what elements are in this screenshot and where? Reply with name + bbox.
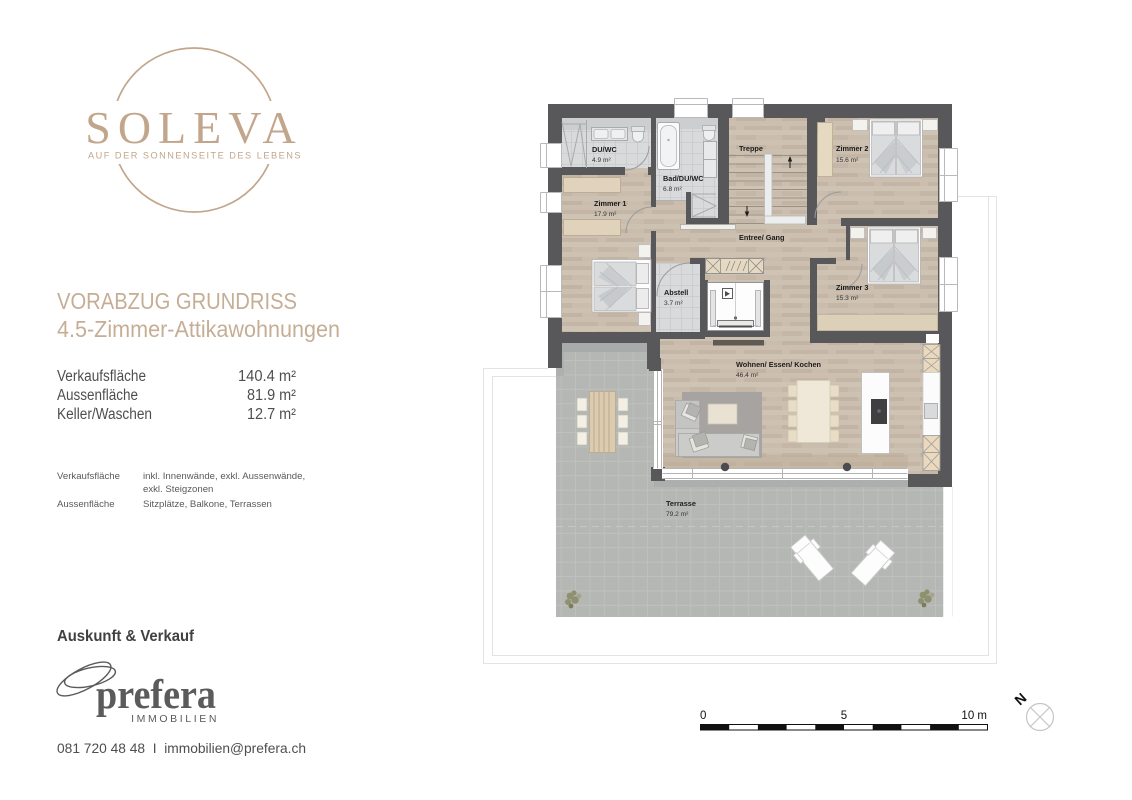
svg-text:15.3 m²: 15.3 m² [836,295,859,302]
svg-text:Zimmer 2: Zimmer 2 [836,144,868,153]
svg-text:prefera: prefera [96,671,216,717]
svg-text:SOLEVA: SOLEVA [85,102,303,153]
svg-text:140.4 m²: 140.4 m² [238,368,296,385]
svg-text:Sitzplätze, Balkone, Terrassen: Sitzplätze, Balkone, Terrassen [143,499,272,510]
svg-text:81.9 m²: 81.9 m² [247,387,296,404]
svg-text:exkl. Steigzonen: exkl. Steigzonen [143,484,213,495]
svg-text:Verkaufsfläche: Verkaufsfläche [57,471,120,482]
svg-text:5: 5 [841,710,847,722]
svg-text:IMMOBILIEN: IMMOBILIEN [131,713,219,725]
svg-text:Treppe: Treppe [739,144,763,153]
svg-text:Zimmer 3: Zimmer 3 [836,283,868,292]
svg-text:12.7 m²: 12.7 m² [247,406,296,423]
svg-text:Verkaufsfläche: Verkaufsfläche [57,368,146,385]
svg-text:AUF DER SONNENSEITE DES LEBENS: AUF DER SONNENSEITE DES LEBENS [88,151,302,161]
svg-text:081 720 48 48 I immobilien@p: 081 720 48 48 I immobilien@prefera.ch [57,741,306,756]
svg-text:Abstell: Abstell [664,288,688,297]
svg-text:6.8 m²: 6.8 m² [663,186,682,193]
svg-text:17.9 m²: 17.9 m² [594,211,617,218]
svg-text:79.2 m²: 79.2 m² [666,511,689,518]
svg-text:0: 0 [700,710,706,722]
svg-text:46.4 m²: 46.4 m² [736,372,759,379]
svg-text:Wohnen/ Essen/ Kochen: Wohnen/ Essen/ Kochen [736,360,821,369]
svg-text:Entree/ Gang: Entree/ Gang [739,233,784,242]
svg-text:3.7 m²: 3.7 m² [664,300,683,307]
svg-text:4.5-Zimmer-Attikawohnungen: 4.5-Zimmer-Attikawohnungen [57,316,340,342]
svg-text:Zimmer 1: Zimmer 1 [594,199,626,208]
svg-text:Auskunft & Verkauf: Auskunft & Verkauf [57,628,195,645]
svg-text:Aussenfläche: Aussenfläche [57,499,115,510]
svg-text:VORABZUG GRUNDRISS: VORABZUG GRUNDRISS [57,288,297,314]
svg-text:10 m: 10 m [961,710,987,722]
svg-text:DU/WC: DU/WC [592,145,617,154]
svg-text:inkl. Innenwände, exkl. Aussen: inkl. Innenwände, exkl. Aussenwände, [143,471,305,482]
svg-text:Aussenfläche: Aussenfläche [57,387,138,404]
svg-text:4.9 m²: 4.9 m² [592,157,611,164]
svg-text:Bad/DU/WC: Bad/DU/WC [663,174,704,183]
svg-text:Terrasse: Terrasse [666,499,696,508]
svg-text:Keller/Waschen: Keller/Waschen [57,406,152,423]
svg-text:15.6 m²: 15.6 m² [836,157,859,164]
